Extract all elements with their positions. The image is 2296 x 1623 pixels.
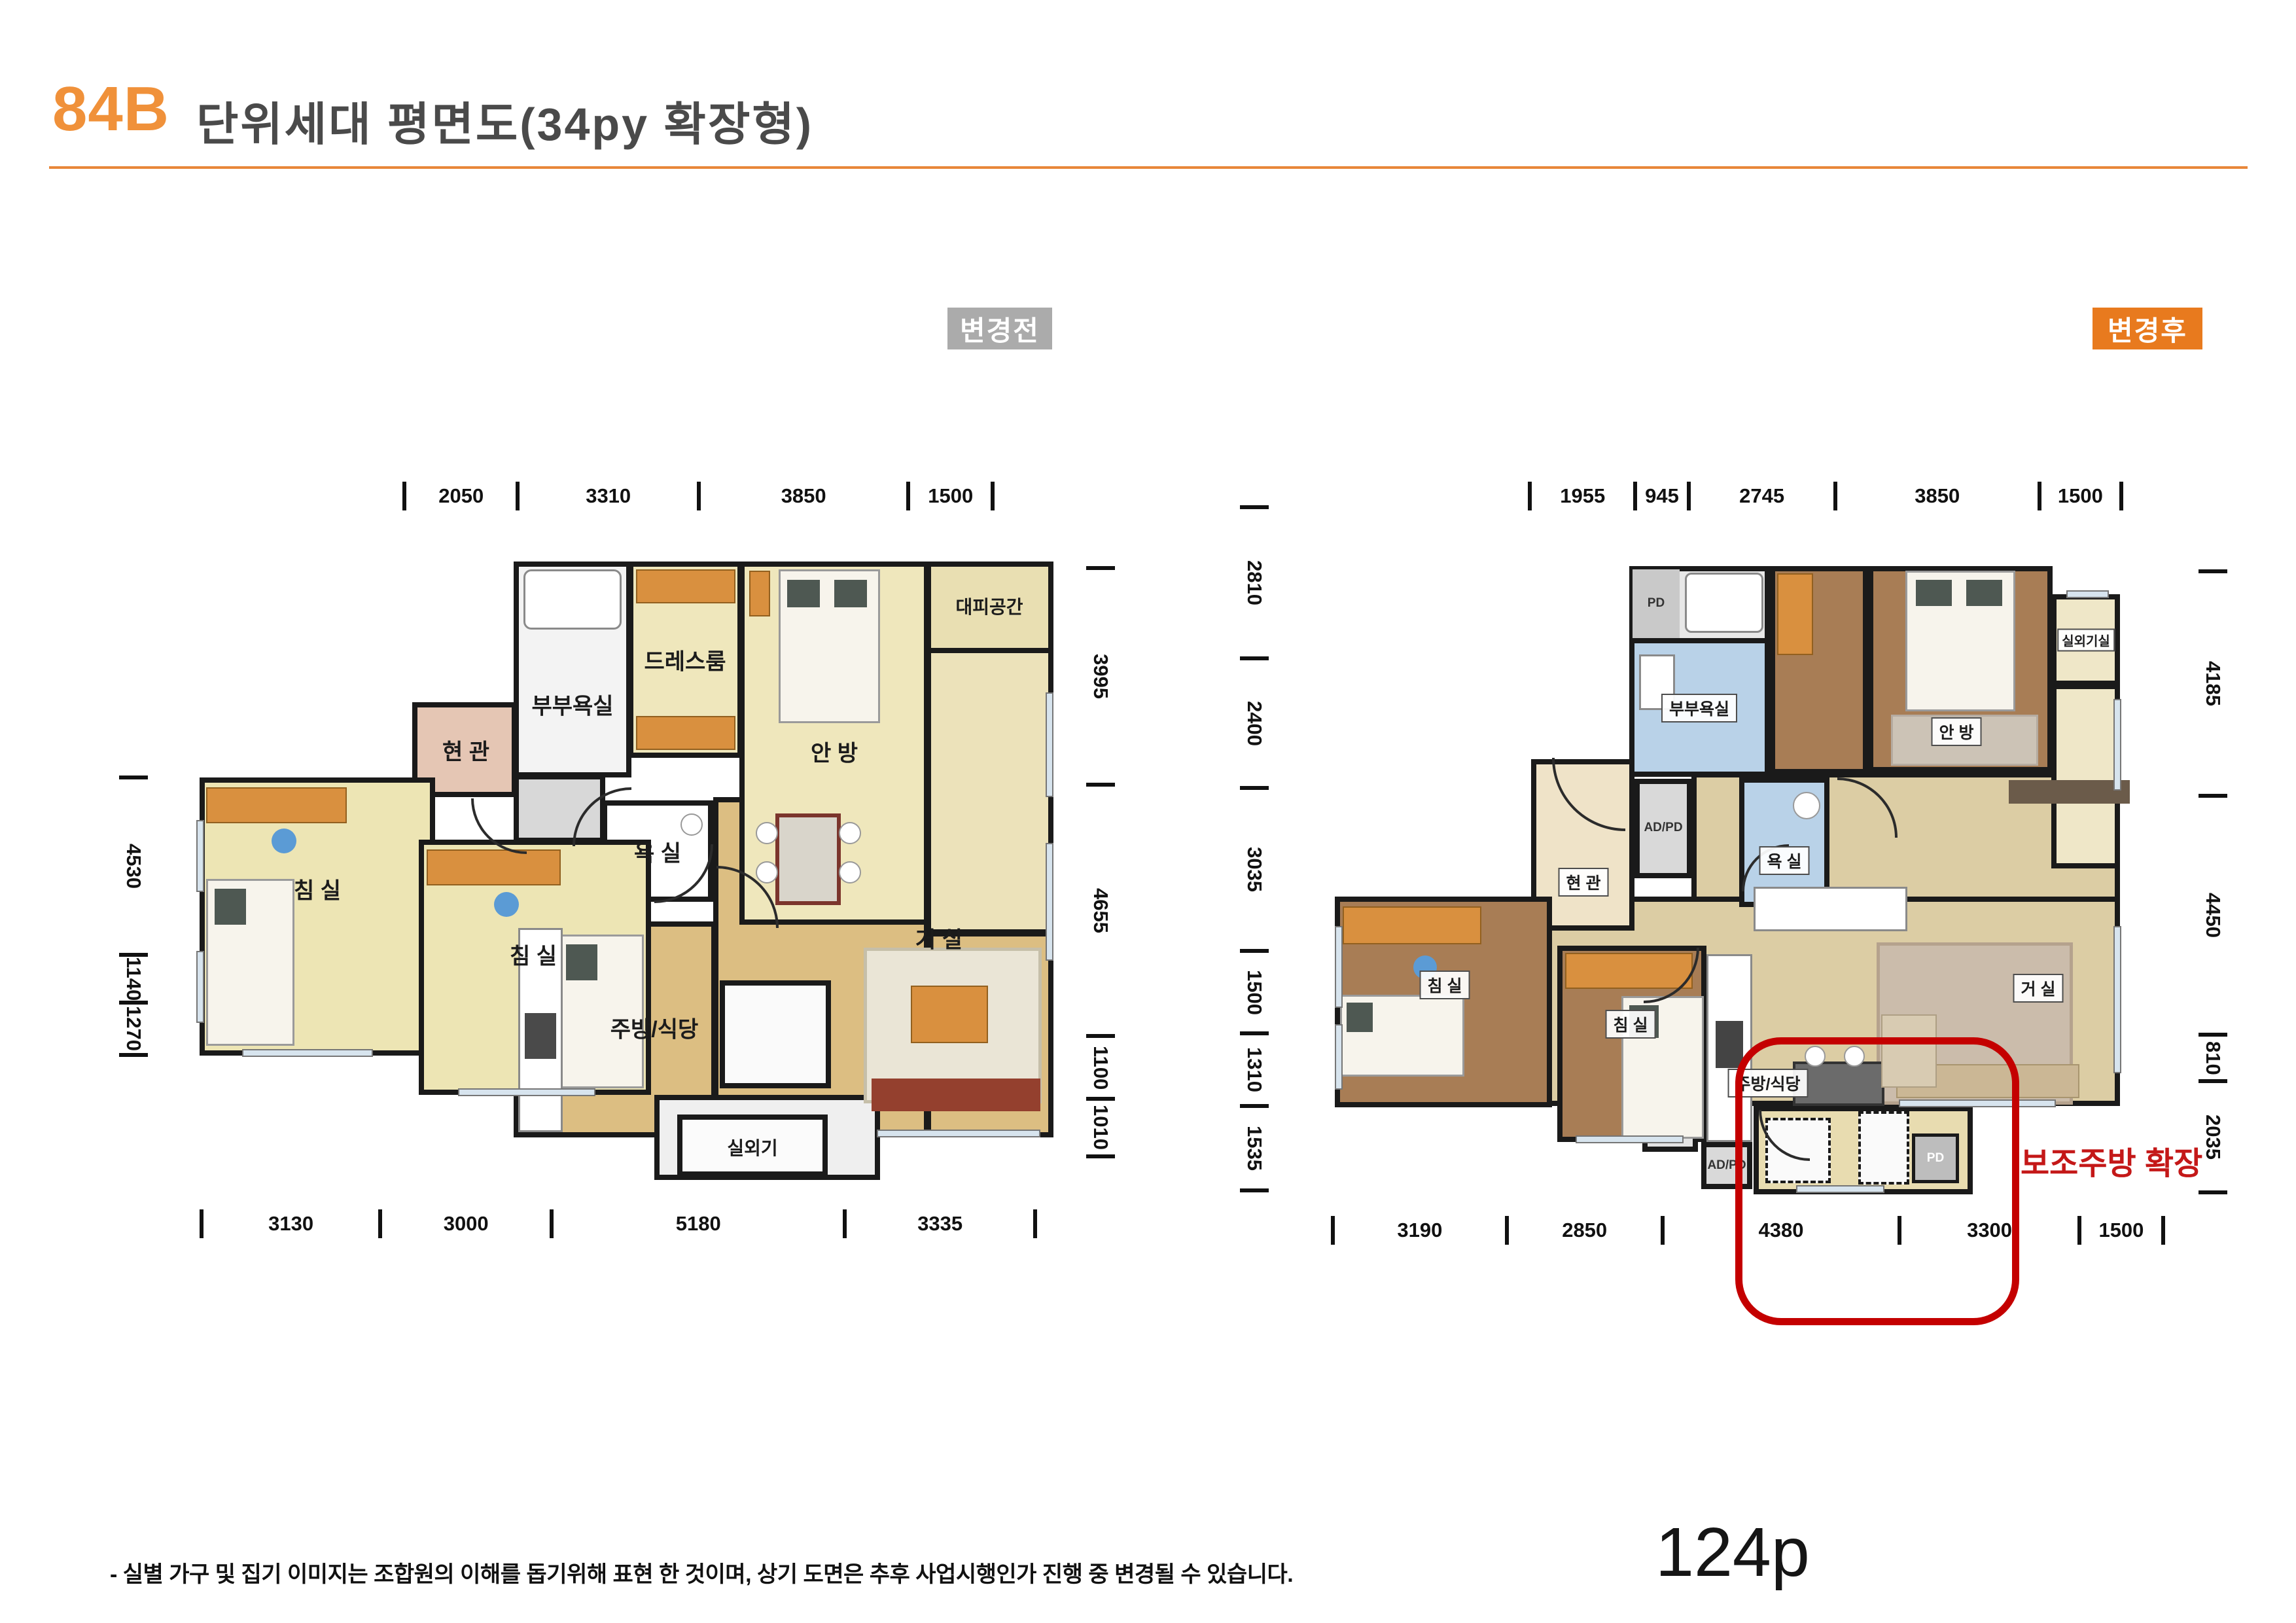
dim-value: 3130: [200, 1209, 378, 1238]
highlight-box: [1735, 1037, 2019, 1325]
room-label-bathroom: 욕 실: [634, 836, 681, 868]
pillow: [787, 580, 820, 607]
room-label-bedroom1: 침 실: [1420, 971, 1470, 999]
dim-value: 2400: [1240, 656, 1269, 786]
dim-value: 2810: [1240, 505, 1269, 656]
room-label-kitchen: 주방/식당: [610, 1012, 699, 1044]
room-label-master-bedroom: 안 방: [1932, 717, 1982, 746]
dim-value: 810: [2199, 1033, 2227, 1079]
floorplan-before: 부부욕실 드레스룸 안 방 대피공간 현 관 욕 실 침 실 침 실 주방/식당…: [196, 562, 1053, 1186]
room-label-bedroom2: 침 실: [510, 938, 557, 971]
dim-value: 945: [1633, 482, 1686, 510]
window: [2066, 590, 2109, 598]
toilet: [1793, 792, 1820, 819]
dim-value: 1500: [906, 482, 995, 510]
dim-value: 2035: [2199, 1079, 2227, 1194]
dim-value: 1010: [1086, 1097, 1115, 1158]
dim-value: 4185: [2199, 569, 2227, 794]
dim-value: 1500: [1240, 949, 1269, 1031]
dims-right-before: 3995 4655 1100 1010: [1086, 566, 1115, 1158]
kitchen-island: [1754, 887, 1907, 931]
room-label-master-bedroom: 안 방: [811, 736, 858, 768]
window: [458, 1088, 595, 1096]
bathtub: [523, 569, 622, 630]
dim-value: 4530: [119, 776, 148, 953]
wardrobe: [636, 569, 735, 603]
dim-value: 1270: [119, 1001, 148, 1057]
window: [1335, 1024, 1343, 1090]
pillow: [1966, 580, 2002, 606]
dining-table: [775, 813, 841, 905]
room-label-bathroom: 욕 실: [1759, 846, 1810, 875]
unit-code: 84B: [52, 73, 169, 145]
room-label-master-bath: 부부욕실: [531, 688, 613, 721]
chair: [494, 892, 519, 917]
page-number: 124p: [1655, 1513, 1810, 1592]
balcony: [926, 648, 1053, 935]
dims-top-after: 1955 945 2745 3850 1500: [1528, 482, 2123, 510]
dim-value: 3335: [843, 1209, 1037, 1238]
nightstand: [749, 571, 770, 616]
dims-left-after: 2810 2400 3035 1500 1310 1535: [1240, 505, 1269, 1192]
room-label-pd: PD: [1648, 596, 1665, 611]
dining-chair: [756, 822, 778, 844]
desk: [206, 787, 347, 823]
room-label-entrance: 현 관: [1559, 868, 1609, 897]
dim-value: 1100: [1086, 1034, 1115, 1096]
window: [1335, 926, 1343, 1008]
window: [1046, 692, 1053, 797]
header-rule: [49, 166, 2248, 169]
window: [1046, 843, 1053, 961]
room-label-living: 거 실: [2013, 974, 2064, 1003]
window: [877, 1130, 1040, 1137]
window: [242, 1049, 373, 1057]
dim-value: 3190: [1331, 1216, 1505, 1245]
room-label-escape-space: 대피공간: [955, 593, 1023, 619]
dim-value: 3035: [1240, 786, 1269, 949]
room-label-ad-pd: AD/PD: [1644, 821, 1682, 835]
dim-value: 3850: [1833, 482, 2038, 510]
sink: [1716, 1021, 1743, 1068]
badge-before: 변경전: [947, 308, 1052, 349]
room-label-entrance: 현 관: [442, 734, 489, 766]
sideboard: [2009, 780, 2130, 804]
window: [2113, 699, 2121, 791]
wardrobe: [1777, 573, 1813, 655]
disclaimer-text: - 실별 가구 및 집기 이미지는 조합원의 이해를 돕기위해 표현 한 것이며…: [110, 1556, 1293, 1588]
dining-chair: [839, 861, 861, 883]
dim-value: 4450: [2199, 794, 2227, 1033]
window: [2113, 926, 2121, 1073]
pantry-shaft: [720, 980, 831, 1088]
window: [1576, 1135, 1684, 1143]
window: [196, 951, 204, 1023]
dims-left-before: 4530 1140 1270: [119, 776, 148, 1057]
dining-chair: [756, 861, 778, 883]
toilet: [680, 813, 703, 836]
badge-after: 변경후: [2093, 308, 2202, 349]
dim-value: 4655: [1086, 783, 1115, 1035]
coffee-table: [911, 986, 988, 1043]
dim-value: 1955: [1528, 482, 1633, 510]
dim-value: 1140: [119, 953, 148, 1001]
dim-value: 3995: [1086, 566, 1115, 783]
highlight-annotation: 보조주방 확장: [2021, 1137, 2202, 1183]
room-label-master-bath: 부부욕실: [1661, 694, 1737, 722]
room-label-living: 거 실: [915, 922, 963, 954]
room-label-outdoor-unit-room: 실외기실: [2057, 629, 2115, 652]
desk: [427, 849, 561, 885]
dim-value: 1310: [1240, 1031, 1269, 1104]
room-label-bedroom2: 침 실: [1606, 1010, 1656, 1039]
dim-value: 3850: [697, 482, 907, 510]
dim-value: 1500: [2077, 1216, 2165, 1245]
dims-bottom-before: 3130 3000 5180 3335: [200, 1209, 1037, 1238]
dim-value: 5180: [550, 1209, 843, 1238]
dim-value: 3310: [516, 482, 696, 510]
room-label-dress-room: 드레스룸: [644, 644, 726, 676]
pillow: [1347, 1003, 1373, 1032]
wardrobe: [636, 716, 735, 750]
page-title: 단위세대 평면도(34py 확장형): [196, 88, 813, 154]
dim-value: 2050: [402, 482, 516, 510]
pillow: [834, 580, 867, 607]
sofa: [872, 1079, 1040, 1111]
window: [196, 820, 204, 892]
dim-value: 1500: [2038, 482, 2123, 510]
bathtub: [1685, 573, 1763, 633]
desk: [1343, 906, 1481, 944]
slide: 84B 단위세대 평면도(34py 확장형) 변경전 변경후 2050 3310…: [0, 0, 2296, 1623]
dim-value: 1535: [1240, 1104, 1269, 1192]
pillow: [215, 889, 246, 925]
room-label-outdoor-unit: 실외기: [727, 1134, 777, 1160]
pillow: [566, 944, 597, 980]
dining-chair: [839, 822, 861, 844]
room-label-bedroom1: 침 실: [294, 873, 341, 905]
dim-value: 2745: [1687, 482, 1833, 510]
dims-top-before: 2050 3310 3850 1500: [402, 482, 995, 510]
dims-right-after: 4185 4450 810 2035: [2199, 569, 2227, 1194]
chair: [272, 829, 296, 853]
pillow: [1916, 580, 1952, 606]
stove: [525, 1013, 556, 1059]
balcony: [2051, 684, 2120, 868]
dim-value: 3000: [378, 1209, 550, 1238]
dim-value: 2850: [1505, 1216, 1661, 1245]
